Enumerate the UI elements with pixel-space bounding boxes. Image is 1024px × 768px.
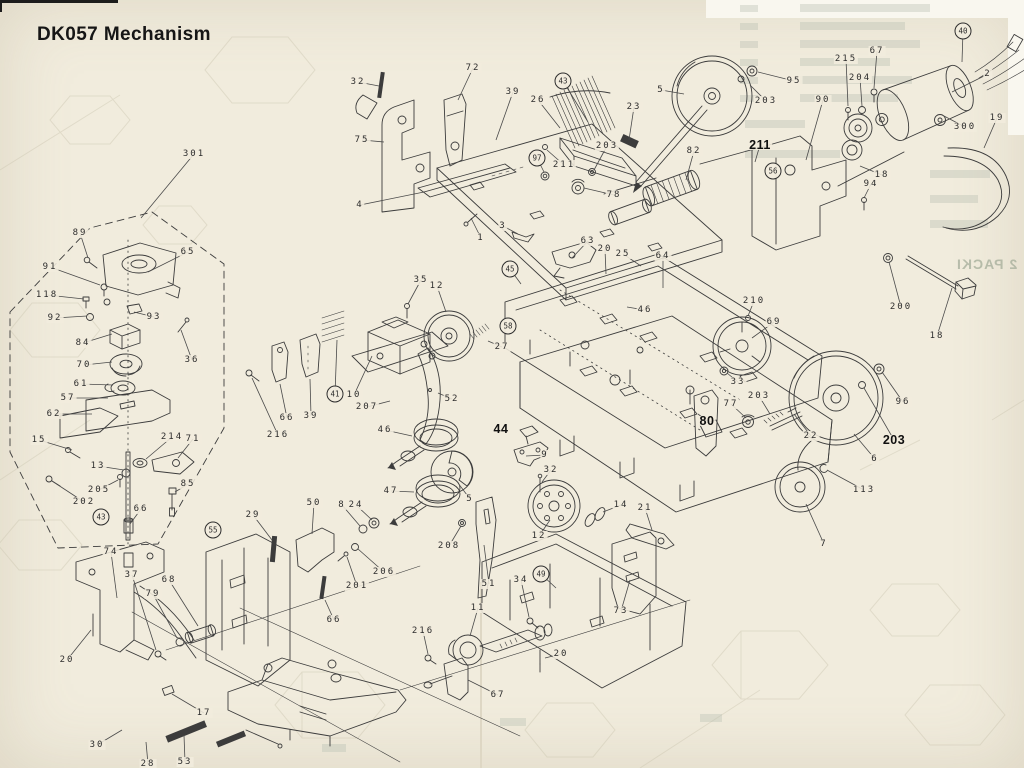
scan-edge-artifact: [0, 0, 118, 3]
scan-edge-artifact-corner: [0, 0, 2, 12]
idler-flywheel-parts: [694, 316, 884, 513]
page-title: DK057 Mechanism: [37, 24, 211, 46]
exploded-parts-diagram: [0, 0, 1024, 768]
main-chassis: [505, 254, 832, 512]
head-plate-assembly: [356, 72, 722, 300]
bleed-through-text-rows: [322, 4, 990, 752]
subassembly-boundary: [10, 212, 224, 548]
head-capstan-parts: [246, 304, 674, 701]
subassembly-stack: [46, 243, 194, 567]
bottom-frames: [76, 528, 690, 762]
scanned-manual-page: DK057 Mechanism 2 PACKI: [0, 0, 1024, 768]
